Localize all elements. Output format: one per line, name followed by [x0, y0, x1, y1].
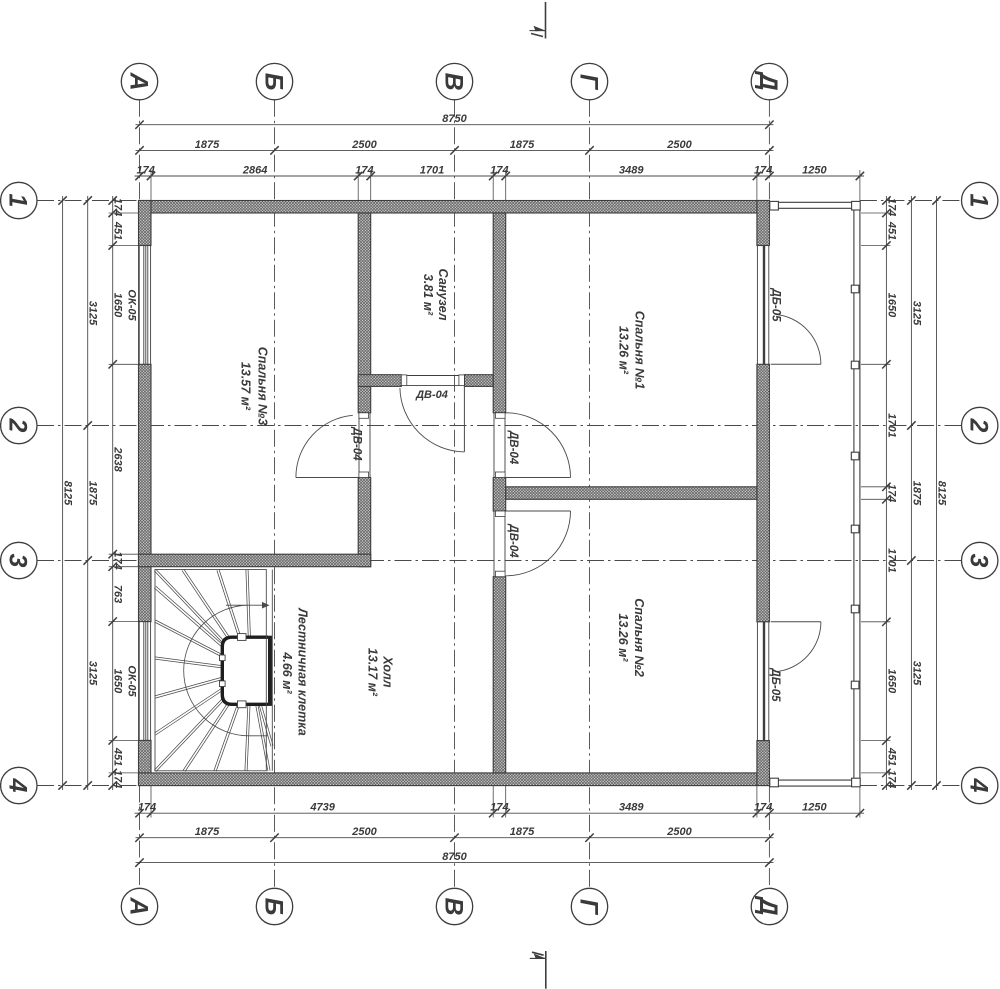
svg-text:13.57 м²: 13.57 м²: [239, 362, 253, 411]
svg-text:2864: 2864: [242, 165, 267, 177]
svg-text:ДВ-04: ДВ-04: [351, 426, 363, 461]
svg-text:3: 3: [4, 554, 32, 568]
svg-text:451: 451: [112, 747, 124, 766]
svg-text:1650: 1650: [885, 293, 897, 318]
svg-text:3.81 м²: 3.81 м²: [421, 274, 435, 316]
svg-text:4: 4: [965, 778, 993, 793]
svg-text:Г: Г: [574, 899, 602, 916]
svg-text:174: 174: [355, 165, 373, 177]
svg-text:2500: 2500: [351, 139, 377, 151]
svg-text:Лестничная клетка: Лестничная клетка: [296, 607, 310, 735]
svg-text:ОК-05: ОК-05: [126, 665, 138, 697]
svg-text:174: 174: [754, 802, 772, 814]
svg-text:1875: 1875: [195, 139, 220, 151]
svg-text:174: 174: [885, 484, 897, 502]
svg-text:2500: 2500: [351, 826, 377, 838]
svg-text:Д: Д: [754, 71, 782, 91]
svg-text:В: В: [439, 73, 467, 91]
svg-text:Спальня №3: Спальня №3: [256, 347, 270, 426]
svg-text:763: 763: [112, 585, 124, 603]
svg-text:174: 174: [885, 770, 897, 788]
svg-text:4.66 м²: 4.66 м²: [280, 651, 294, 694]
svg-text:174: 174: [112, 770, 124, 788]
svg-text:8750: 8750: [442, 851, 467, 863]
svg-text:13.26 м²: 13.26 м²: [617, 326, 631, 375]
svg-text:174: 174: [138, 802, 156, 814]
svg-text:1650: 1650: [112, 293, 124, 318]
svg-text:174: 174: [885, 198, 897, 216]
svg-text:ОК-05: ОК-05: [126, 289, 138, 321]
svg-text:1875: 1875: [87, 481, 99, 506]
svg-text:Д: Д: [754, 895, 782, 915]
svg-text:1875: 1875: [195, 826, 220, 838]
svg-text:ДБ-05: ДБ-05: [770, 287, 782, 322]
svg-text:1875: 1875: [510, 826, 535, 838]
svg-text:Спальня №1: Спальня №1: [633, 311, 647, 390]
svg-text:174: 174: [754, 165, 772, 177]
svg-text:4: 4: [4, 778, 32, 793]
svg-text:3125: 3125: [87, 661, 99, 686]
svg-text:1701: 1701: [420, 165, 444, 177]
svg-text:2: 2: [4, 418, 32, 433]
svg-text:451: 451: [112, 221, 124, 240]
svg-text:Б: Б: [259, 898, 287, 916]
svg-text:Санузел: Санузел: [436, 268, 450, 320]
svg-text:3125: 3125: [910, 301, 922, 326]
svg-text:1250: 1250: [802, 165, 827, 177]
svg-text:174: 174: [490, 802, 508, 814]
svg-text:1650: 1650: [885, 669, 897, 694]
svg-text:8750: 8750: [442, 113, 467, 125]
svg-text:1650: 1650: [112, 669, 124, 694]
svg-text:13.26 м²: 13.26 м²: [616, 613, 630, 662]
svg-text:Г: Г: [574, 74, 602, 91]
svg-text:2638: 2638: [112, 446, 124, 472]
svg-text:8125: 8125: [62, 481, 74, 506]
svg-text:174: 174: [112, 198, 124, 216]
svg-text:Спальня №2: Спальня №2: [632, 598, 646, 677]
svg-text:А: А: [124, 72, 152, 91]
svg-text:451: 451: [885, 747, 897, 766]
svg-text:4739: 4739: [309, 802, 335, 814]
svg-text:А: А: [124, 896, 152, 915]
svg-text:ДВ-04: ДВ-04: [507, 523, 519, 558]
svg-text:Холл: Холл: [381, 655, 395, 687]
svg-text:3125: 3125: [910, 661, 922, 686]
svg-text:451: 451: [885, 221, 897, 240]
svg-text:В: В: [439, 897, 467, 915]
svg-text:1701: 1701: [885, 548, 897, 572]
svg-text:174: 174: [137, 165, 155, 177]
svg-text:1701: 1701: [885, 413, 897, 437]
svg-text:2500: 2500: [666, 139, 692, 151]
svg-text:174: 174: [490, 165, 508, 177]
svg-text:3489: 3489: [619, 802, 644, 814]
svg-text:3489: 3489: [619, 165, 644, 177]
svg-text:1875: 1875: [510, 139, 535, 151]
svg-text:1: 1: [4, 194, 32, 208]
svg-text:3125: 3125: [87, 301, 99, 326]
svg-text:13.17 м²: 13.17 м²: [366, 648, 380, 697]
svg-text:ДВ-04: ДВ-04: [507, 430, 519, 465]
svg-text:ДБ-05: ДБ-05: [769, 667, 781, 702]
svg-text:174: 174: [112, 551, 124, 569]
svg-text:3: 3: [965, 554, 993, 568]
svg-text:8125: 8125: [936, 481, 948, 506]
svg-text:1875: 1875: [910, 481, 922, 506]
svg-text:2: 2: [965, 418, 993, 433]
svg-text:2500: 2500: [666, 826, 692, 838]
svg-text:Б: Б: [259, 73, 287, 91]
svg-text:1: 1: [965, 194, 993, 208]
svg-text:ДВ-04: ДВ-04: [415, 389, 448, 401]
svg-text:1250: 1250: [802, 802, 827, 814]
